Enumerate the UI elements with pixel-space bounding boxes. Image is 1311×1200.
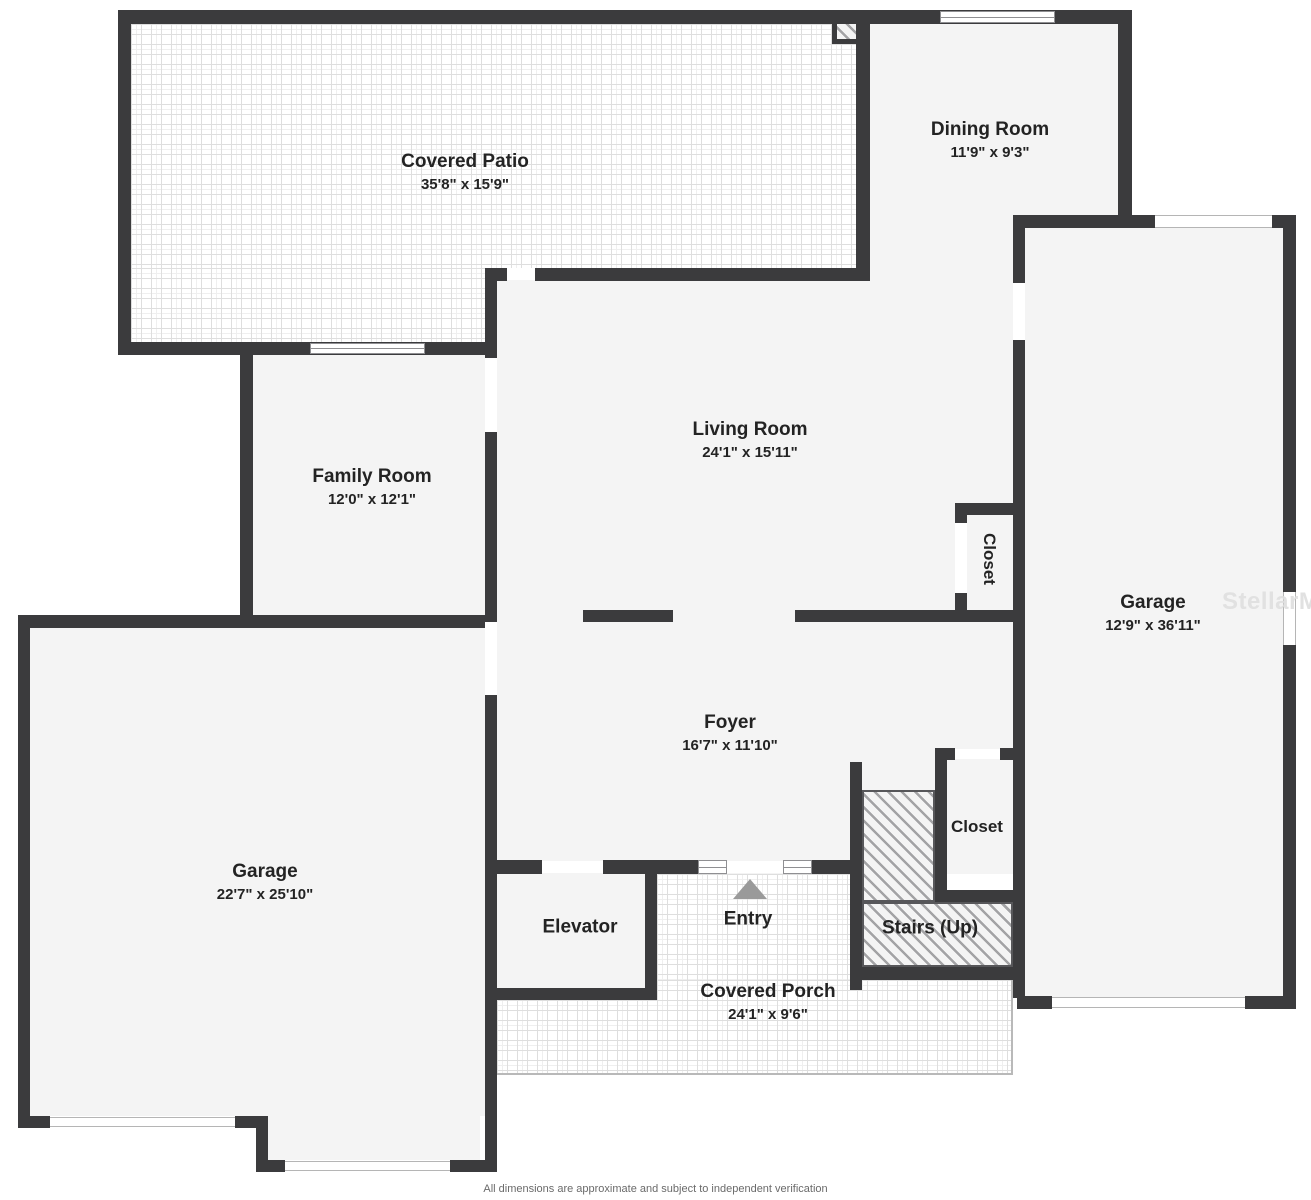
wall xyxy=(256,1160,285,1172)
wall xyxy=(485,268,497,358)
wall xyxy=(1017,996,1052,1009)
room-label-foyer: Foyer 16'7" x 11'10" xyxy=(682,711,778,755)
wall xyxy=(535,268,870,281)
wall xyxy=(935,890,1013,902)
wall xyxy=(18,615,30,1128)
wall xyxy=(1013,340,1025,998)
door-opening xyxy=(1013,283,1025,340)
entry-direction-icon xyxy=(733,879,767,899)
window-symbol xyxy=(310,343,425,354)
wall xyxy=(1283,645,1296,1009)
room-dims: 24'1" x 15'11" xyxy=(692,443,807,463)
room-name: Foyer xyxy=(682,711,778,736)
room-label-closet-upper: Closet xyxy=(978,533,1000,585)
room-name: Garage xyxy=(217,860,313,885)
wall xyxy=(485,695,497,1172)
room-label-closet-lower: Closet xyxy=(951,816,1003,838)
wall xyxy=(850,762,862,990)
room-dims: 16'7" x 11'10" xyxy=(682,736,778,756)
floor-plan: Covered Patio 35'8" x 15'9" Dining Room … xyxy=(0,0,1311,1200)
wall xyxy=(850,967,1017,980)
disclaimer-text: All dimensions are approximate and subje… xyxy=(0,1183,1311,1195)
room-name: Stairs (Up) xyxy=(882,917,978,942)
wall xyxy=(485,988,657,1000)
room-label-elevator: Elevator xyxy=(543,916,618,941)
wall-opening xyxy=(1155,215,1272,228)
room-label-garage-left: Garage 22'7" x 25'10" xyxy=(217,860,313,904)
wall xyxy=(240,342,253,628)
room-dims: 11'9" x 9'3" xyxy=(931,143,1049,163)
watermark: StellarMLS xyxy=(1222,588,1311,616)
wall xyxy=(1000,748,1013,760)
room-label-family-room: Family Room 12'0" x 12'1" xyxy=(312,465,431,509)
room-label-garage-right: Garage 12'9" x 36'11" xyxy=(1105,591,1201,635)
wall xyxy=(18,615,495,628)
wall xyxy=(1245,996,1295,1009)
patio-tile-area xyxy=(131,24,856,268)
wall xyxy=(1283,215,1296,592)
wall xyxy=(795,610,1013,622)
garage-door-symbol xyxy=(1052,997,1245,1008)
door-opening xyxy=(955,523,967,593)
room-name: Entry xyxy=(724,908,773,933)
garage-door-symbol xyxy=(50,1117,235,1127)
room-name: Covered Porch xyxy=(700,980,835,1005)
room-dims: 12'0" x 12'1" xyxy=(312,490,431,510)
room-name: Covered Patio xyxy=(401,150,529,175)
wall xyxy=(485,432,497,622)
entry-sidelight-symbol xyxy=(783,860,812,874)
room-dims: 22'7" x 25'10" xyxy=(217,885,313,905)
wall xyxy=(1013,215,1155,228)
garage-door-symbol xyxy=(285,1161,450,1171)
wall xyxy=(118,10,131,355)
wall xyxy=(955,503,967,523)
room-dims: 12'9" x 36'11" xyxy=(1105,616,1201,636)
stairs-hatch-area xyxy=(862,790,935,902)
wall xyxy=(645,860,657,1000)
entry-door-opening xyxy=(727,861,783,873)
wall xyxy=(118,342,252,355)
room-label-living-room: Living Room 24'1" x 15'11" xyxy=(692,418,807,462)
room-dims: 24'1" x 9'6" xyxy=(700,1005,835,1025)
room-name: Living Room xyxy=(692,418,807,443)
wall xyxy=(18,1116,50,1128)
wall xyxy=(583,610,673,622)
wall xyxy=(485,268,507,281)
entry-sidelight-symbol xyxy=(698,860,727,874)
room-label-covered-patio: Covered Patio 35'8" x 15'9" xyxy=(401,150,529,194)
room-name: Closet xyxy=(951,816,1003,838)
door-opening xyxy=(542,861,603,873)
room-label-entry: Entry xyxy=(724,908,773,933)
room-label-covered-porch: Covered Porch 24'1" x 9'6" xyxy=(700,980,835,1024)
window-symbol xyxy=(940,11,1055,23)
room-name: Elevator xyxy=(543,916,618,941)
room-name: Family Room xyxy=(312,465,431,490)
room-name: Dining Room xyxy=(931,118,1049,143)
patio-tile-area xyxy=(131,268,485,342)
wall xyxy=(856,10,870,268)
wall xyxy=(935,748,955,760)
room-label-stairs: Stairs (Up) xyxy=(882,917,978,942)
room-name: Closet xyxy=(978,533,1000,585)
room-label-dining-room: Dining Room 11'9" x 9'3" xyxy=(931,118,1049,162)
door-opening xyxy=(485,622,497,695)
wall xyxy=(935,748,947,902)
room-floor-dining xyxy=(870,228,1013,280)
door-opening xyxy=(507,269,535,280)
door-opening xyxy=(955,749,1000,759)
room-floor-garage-left xyxy=(268,1116,480,1160)
room-name: Garage xyxy=(1105,591,1201,616)
wall xyxy=(450,1160,497,1172)
wall xyxy=(485,860,542,874)
wall xyxy=(1013,215,1025,283)
wall xyxy=(1118,10,1132,228)
room-dims: 35'8" x 15'9" xyxy=(401,175,529,195)
